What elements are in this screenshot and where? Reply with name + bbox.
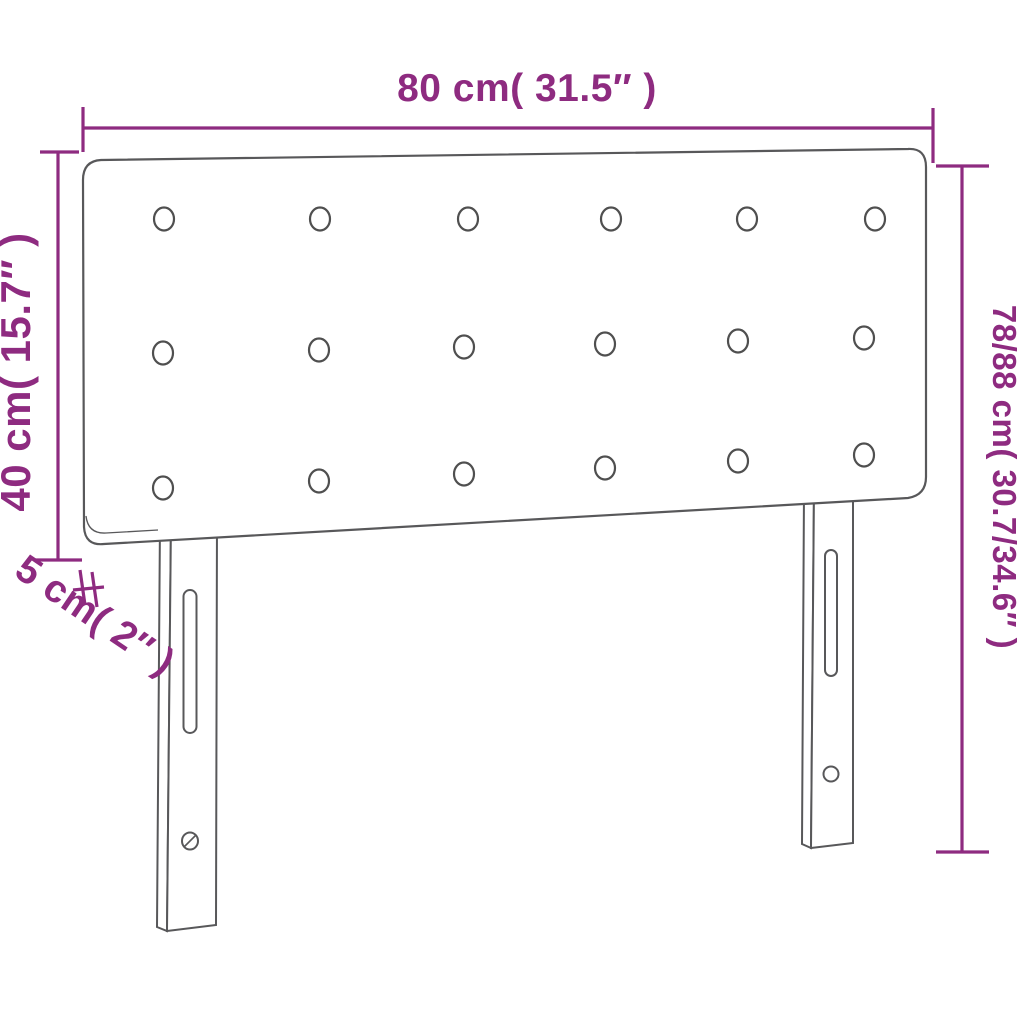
- left-leg-front-face: [167, 516, 217, 931]
- tufting-button: [154, 208, 174, 231]
- left-leg: [157, 516, 217, 931]
- headboard-dimension-diagram: 80 cm( 31.5″ ) 40 cm( 15.7″ ) 78/88 cm( …: [0, 0, 1024, 1024]
- tufting-button: [728, 330, 748, 353]
- tufting-button: [728, 450, 748, 473]
- headboard-outline: [83, 149, 926, 544]
- tufting-button: [601, 208, 621, 231]
- right-leg: [802, 486, 853, 848]
- tufting-button: [865, 208, 885, 231]
- tufting-button: [854, 327, 874, 350]
- dimension-height-right: 78/88 cm( 30.7/34.6″ ): [936, 166, 1023, 852]
- tufting-button: [595, 457, 615, 480]
- diagram-svg: 80 cm( 31.5″ ) 40 cm( 15.7″ ) 78/88 cm( …: [0, 0, 1024, 1024]
- right-leg-front-face: [811, 486, 853, 848]
- dimension-label-height-right: 78/88 cm( 30.7/34.6″ ): [986, 305, 1023, 649]
- tufting-button: [854, 444, 874, 467]
- tufting-button: [737, 208, 757, 231]
- dimension-width-top: 80 cm( 31.5″ ): [83, 67, 933, 163]
- dimension-label-width: 80 cm( 31.5″ ): [397, 67, 657, 110]
- tufting-button: [310, 208, 330, 231]
- headboard-panel: [83, 149, 926, 544]
- tufting-button: [153, 477, 173, 500]
- tufting-button: [458, 208, 478, 231]
- dimension-thickness: 5 cm( 2″ ): [8, 547, 183, 684]
- dimension-label-height-left: 40 cm( 15.7″ ): [0, 232, 39, 511]
- tufting-button: [309, 339, 329, 362]
- tufting-button: [595, 333, 615, 356]
- dimension-height-left: 40 cm( 15.7″ ): [0, 152, 82, 560]
- dimension-label-thickness: 5 cm( 2″ ): [8, 547, 183, 684]
- tufting-button: [454, 463, 474, 486]
- tufting-button: [153, 342, 173, 365]
- tufting-button: [454, 336, 474, 359]
- tufting-button: [309, 470, 329, 493]
